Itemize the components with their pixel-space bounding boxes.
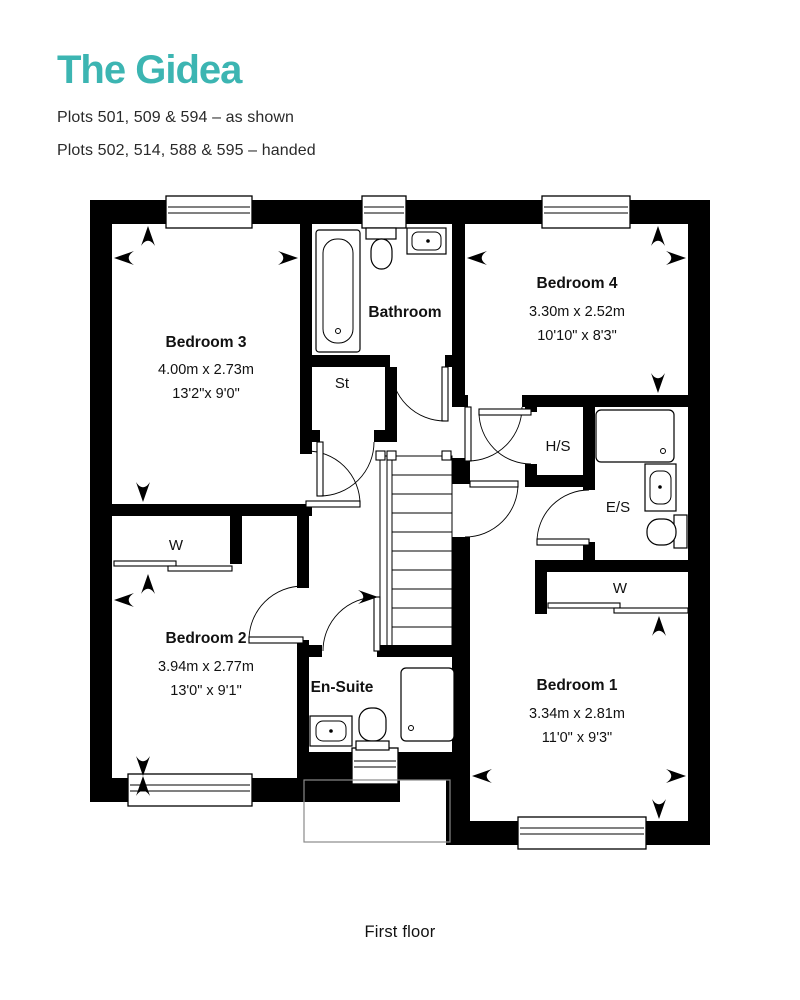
sliding-door-wardrobe-bed1 [548,603,688,613]
window-bedroom1 [518,817,646,849]
stair-newel-post [442,451,451,460]
sink-icon [407,228,446,254]
walls [90,200,710,845]
dim-arrow-down-icon [136,482,150,502]
toilet-icon [647,515,687,548]
dim-arrow-up-icon [652,616,666,636]
page-title: The Gidea [57,48,316,93]
wall-ensuite-top-left [297,645,322,657]
bathroom-name: Bathroom [368,304,441,321]
door-es [537,490,589,545]
dim-arrow-up-icon [141,574,155,594]
wall-bathroom-bedroom4-divider [452,224,465,395]
dim-arrow-left-icon [472,769,492,783]
wall-storage-bottom-right [374,430,397,442]
bedroom1-metric: 3.34m x 2.81m [529,706,625,722]
floorplan-page: The Gidea Plots 501, 509 & 594 – as show… [0,0,800,1000]
window-bathroom [362,196,406,228]
wall-bathroom-jamb [445,355,452,367]
bedroom3-name: Bedroom 3 [166,334,247,351]
staircase [376,451,452,648]
dim-arrow-down-icon [651,373,665,393]
wall-bedroom3-right [300,224,312,454]
door-bedroom2 [249,586,303,643]
wall-wardrobe2-stub [230,516,242,564]
shower-tray-icon [401,668,454,741]
bedroom4-imperial: 10'10" x 8'3" [537,328,617,344]
es-name: E/S [606,499,630,516]
dim-arrow-down-icon [652,799,666,819]
stair-newel-post [387,451,396,460]
window-bedroom4 [542,196,630,228]
stair-newel-post [376,451,385,460]
door-ensuite [323,597,380,651]
bedroom2-imperial: 13'0" x 9'1" [170,683,241,699]
plots-handed: Plots 502, 514, 588 & 595 – handed [57,142,316,160]
wall-corridor-left-lower [297,640,309,780]
door-bedroom3 [306,451,360,507]
wardrobe-bed1-label: W [613,580,628,597]
dim-arrow-right-icon [278,251,298,265]
bedroom3-imperial: 13'2"x 9'0" [172,386,239,402]
bedroom1-imperial: 11'0" x 9'3" [542,730,612,746]
wall-bathroom-bottom [312,355,390,367]
es-fixtures [596,410,687,548]
window-ensuite [352,748,398,784]
plots-as-shown: Plots 501, 509 & 594 – as shown [57,109,316,127]
ensuite-name: En-Suite [311,679,374,696]
dim-arrow-down-icon2 [136,756,150,776]
wall-bedroom4-bottom [522,395,688,407]
wall-storage-right [385,367,397,430]
wardrobe-bed2-label: W [169,537,184,554]
wall-es-bottom [535,560,688,572]
storage-name: St [335,375,350,392]
toilet-icon [366,228,396,269]
wall-ensuite-top-right [377,645,460,657]
bedroom4-metric: 3.30m x 2.52m [529,304,625,320]
dim-arrow-left-icon [114,593,134,607]
window-bedroom3 [166,196,252,228]
wall-corridor-left-upper [297,516,309,588]
dim-arrow-left-icon [114,251,134,265]
bedroom2-name: Bedroom 2 [166,630,247,647]
header: The Gidea Plots 501, 509 & 594 – as show… [57,48,316,175]
dim-arrow-left-icon [467,251,487,265]
bedroom4-name: Bedroom 4 [537,275,618,292]
bedroom2-metric: 3.94m x 2.77m [158,659,254,675]
dim-arrow-right-icon [666,251,686,265]
door-hs [479,409,531,464]
floor-caption: First floor [0,923,800,942]
wall-storage-bottom-left [305,430,320,442]
bathroom-fixtures [316,228,446,352]
door-bedroom1 [465,481,518,537]
door-bathroom [391,367,448,421]
sink-icon [310,716,352,746]
shower-tray-icon [596,410,674,462]
wall-stair-top [452,458,470,484]
wall-right-exterior [688,200,710,845]
wall-wardrobe1-left [535,572,547,614]
bedroom1-name: Bedroom 1 [537,677,618,694]
dim-arrow-right-icon [666,769,686,783]
floorplan-drawing: Bedroom 3 4.00m x 2.73m 13'2"x 9'0" Bath… [90,190,710,850]
door-storage [317,442,374,496]
wall-left-exterior [90,200,112,802]
sliding-door-wardrobe-bed2 [114,561,232,571]
sink-icon [645,464,676,511]
dim-arrow-up-icon [651,226,665,246]
wall-bedroom4-bottom-stub [452,395,468,407]
toilet-icon [356,708,389,750]
bedroom3-metric: 4.00m x 2.73m [158,362,254,378]
dim-arrow-up-icon [141,226,155,246]
wall-hs-es-divider [583,407,595,490]
bathtub-icon [316,230,360,352]
hs-name: H/S [545,438,570,455]
wall-bedroom3-bottom [90,504,312,516]
